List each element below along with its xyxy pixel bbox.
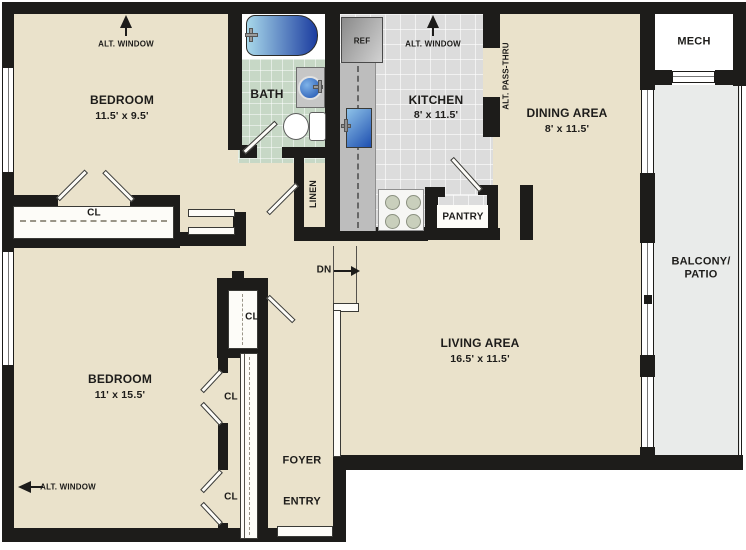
dining-dims: 8' x 11.5' (545, 123, 589, 135)
alt-window-arrow-stem-kitchen (432, 27, 434, 36)
b2closet-track (244, 354, 245, 538)
sliding-door-handle (644, 295, 652, 304)
kitchen-name: KITCHEN (409, 94, 464, 108)
dn-label: DN (317, 264, 332, 276)
balcony-line1: BALCONY/ (671, 255, 730, 268)
stove-burner (385, 195, 400, 210)
bedroom1-bifold-door-b (188, 227, 235, 235)
balcony-name: BALCONY/ PATIO (671, 255, 730, 280)
pantry-name: PANTRY (442, 211, 483, 223)
closet-label-bedroom2-a: CL (224, 391, 238, 403)
alt-pass-thru-label: ALT. PASS-THRU (501, 42, 510, 109)
alt-window-label-bedroom2: ALT. WINDOW (40, 482, 96, 491)
wall-right-top (733, 2, 746, 86)
wall-b2closet-stub-b (218, 423, 228, 470)
wall-b2closet-stub-c (218, 523, 228, 542)
wall-kitchen-dining-mid (483, 97, 500, 137)
wall-top (2, 2, 743, 14)
living-name: LIVING AREA (440, 337, 519, 351)
foyer-closet-rod (242, 294, 243, 345)
b2closet-rod (249, 357, 250, 535)
linen-name: LINEN (308, 180, 318, 208)
window-bedroom1 (2, 68, 14, 172)
wall-pantry-right (487, 185, 498, 240)
kitchen-sink (346, 108, 372, 148)
stair-railing (333, 310, 341, 457)
bedroom2-name: BEDROOM (88, 373, 152, 387)
stair-line-right (356, 246, 357, 306)
stove-burner (406, 214, 421, 229)
wall-living-bottom (333, 455, 743, 470)
wall-cl1-nub (232, 271, 244, 279)
wall-mech-bottom-right (715, 70, 733, 85)
window-living-balcony (641, 377, 654, 447)
foyer-name: FOYER (283, 455, 322, 468)
bedroom1-name: BEDROOM (90, 94, 154, 108)
alt-window-label-bedroom1: ALT. WINDOW (98, 39, 154, 48)
wall-b1closet-top-a (13, 195, 58, 206)
b1closet-rod (20, 220, 167, 222)
bedroom1-dims: 11.5' x 9.5' (95, 110, 149, 122)
bath-sink-faucet-handle (318, 80, 322, 93)
entry-door (277, 526, 333, 537)
closet-label-bedroom1: CL (87, 207, 101, 219)
bedroom1-bifold-door-a (188, 209, 235, 217)
dn-arrow-head (351, 266, 360, 276)
alt-window-arrow-stem-bedroom1 (125, 27, 127, 36)
ref-label: REF (354, 36, 371, 45)
wall-balcony-4 (640, 447, 655, 467)
stove (378, 189, 424, 231)
stove-burner (385, 214, 400, 229)
b2closet-door-strip (240, 353, 258, 539)
bath-name: BATH (250, 88, 283, 102)
alt-window-arrow-bedroom2 (18, 481, 31, 493)
dining-name: DINING AREA (526, 107, 607, 121)
mech-louver-door (672, 71, 715, 83)
wall-mech-bottom-left (653, 70, 672, 85)
stove-burner (406, 195, 421, 210)
kitchen-faucet-handle (344, 119, 348, 132)
wall-cl1-left (217, 278, 228, 350)
mech-name: MECH (677, 36, 710, 49)
wall-dining-stub (520, 185, 533, 240)
pass-thru-opening (483, 48, 500, 97)
wall-balcony-2 (640, 173, 655, 243)
window-bedroom2 (2, 252, 14, 365)
wall-bath-left (228, 2, 242, 150)
floor-plan: ALT. WINDOW BEDROOM 11.5' x 9.5' BATH RE… (0, 0, 746, 550)
bathtub-faucet-spout (245, 33, 258, 37)
alt-window-label-kitchen: ALT. WINDOW (405, 39, 461, 48)
window-dining-balcony (641, 90, 654, 173)
wall-balcony-3 (640, 355, 655, 377)
living-dims: 16.5' x 11.5' (450, 353, 510, 365)
kitchen-dims: 8' x 11.5' (414, 109, 458, 121)
bedroom2-dims: 11' x 15.5' (95, 389, 145, 401)
stair-line-left (333, 246, 334, 306)
balcony-line2: PATIO (671, 268, 730, 281)
closet-label-foyer: CL (245, 311, 259, 323)
balcony-railing-edge (738, 85, 742, 457)
wall-kitchen-dining-top (483, 2, 500, 48)
toilet-tank (309, 112, 326, 141)
closet-label-bedroom2-b: CL (224, 491, 238, 503)
toilet-bowl (283, 113, 309, 140)
wall-kitchen-left (325, 2, 340, 241)
dn-arrow-line (334, 270, 352, 272)
entry-name: ENTRY (283, 496, 321, 509)
